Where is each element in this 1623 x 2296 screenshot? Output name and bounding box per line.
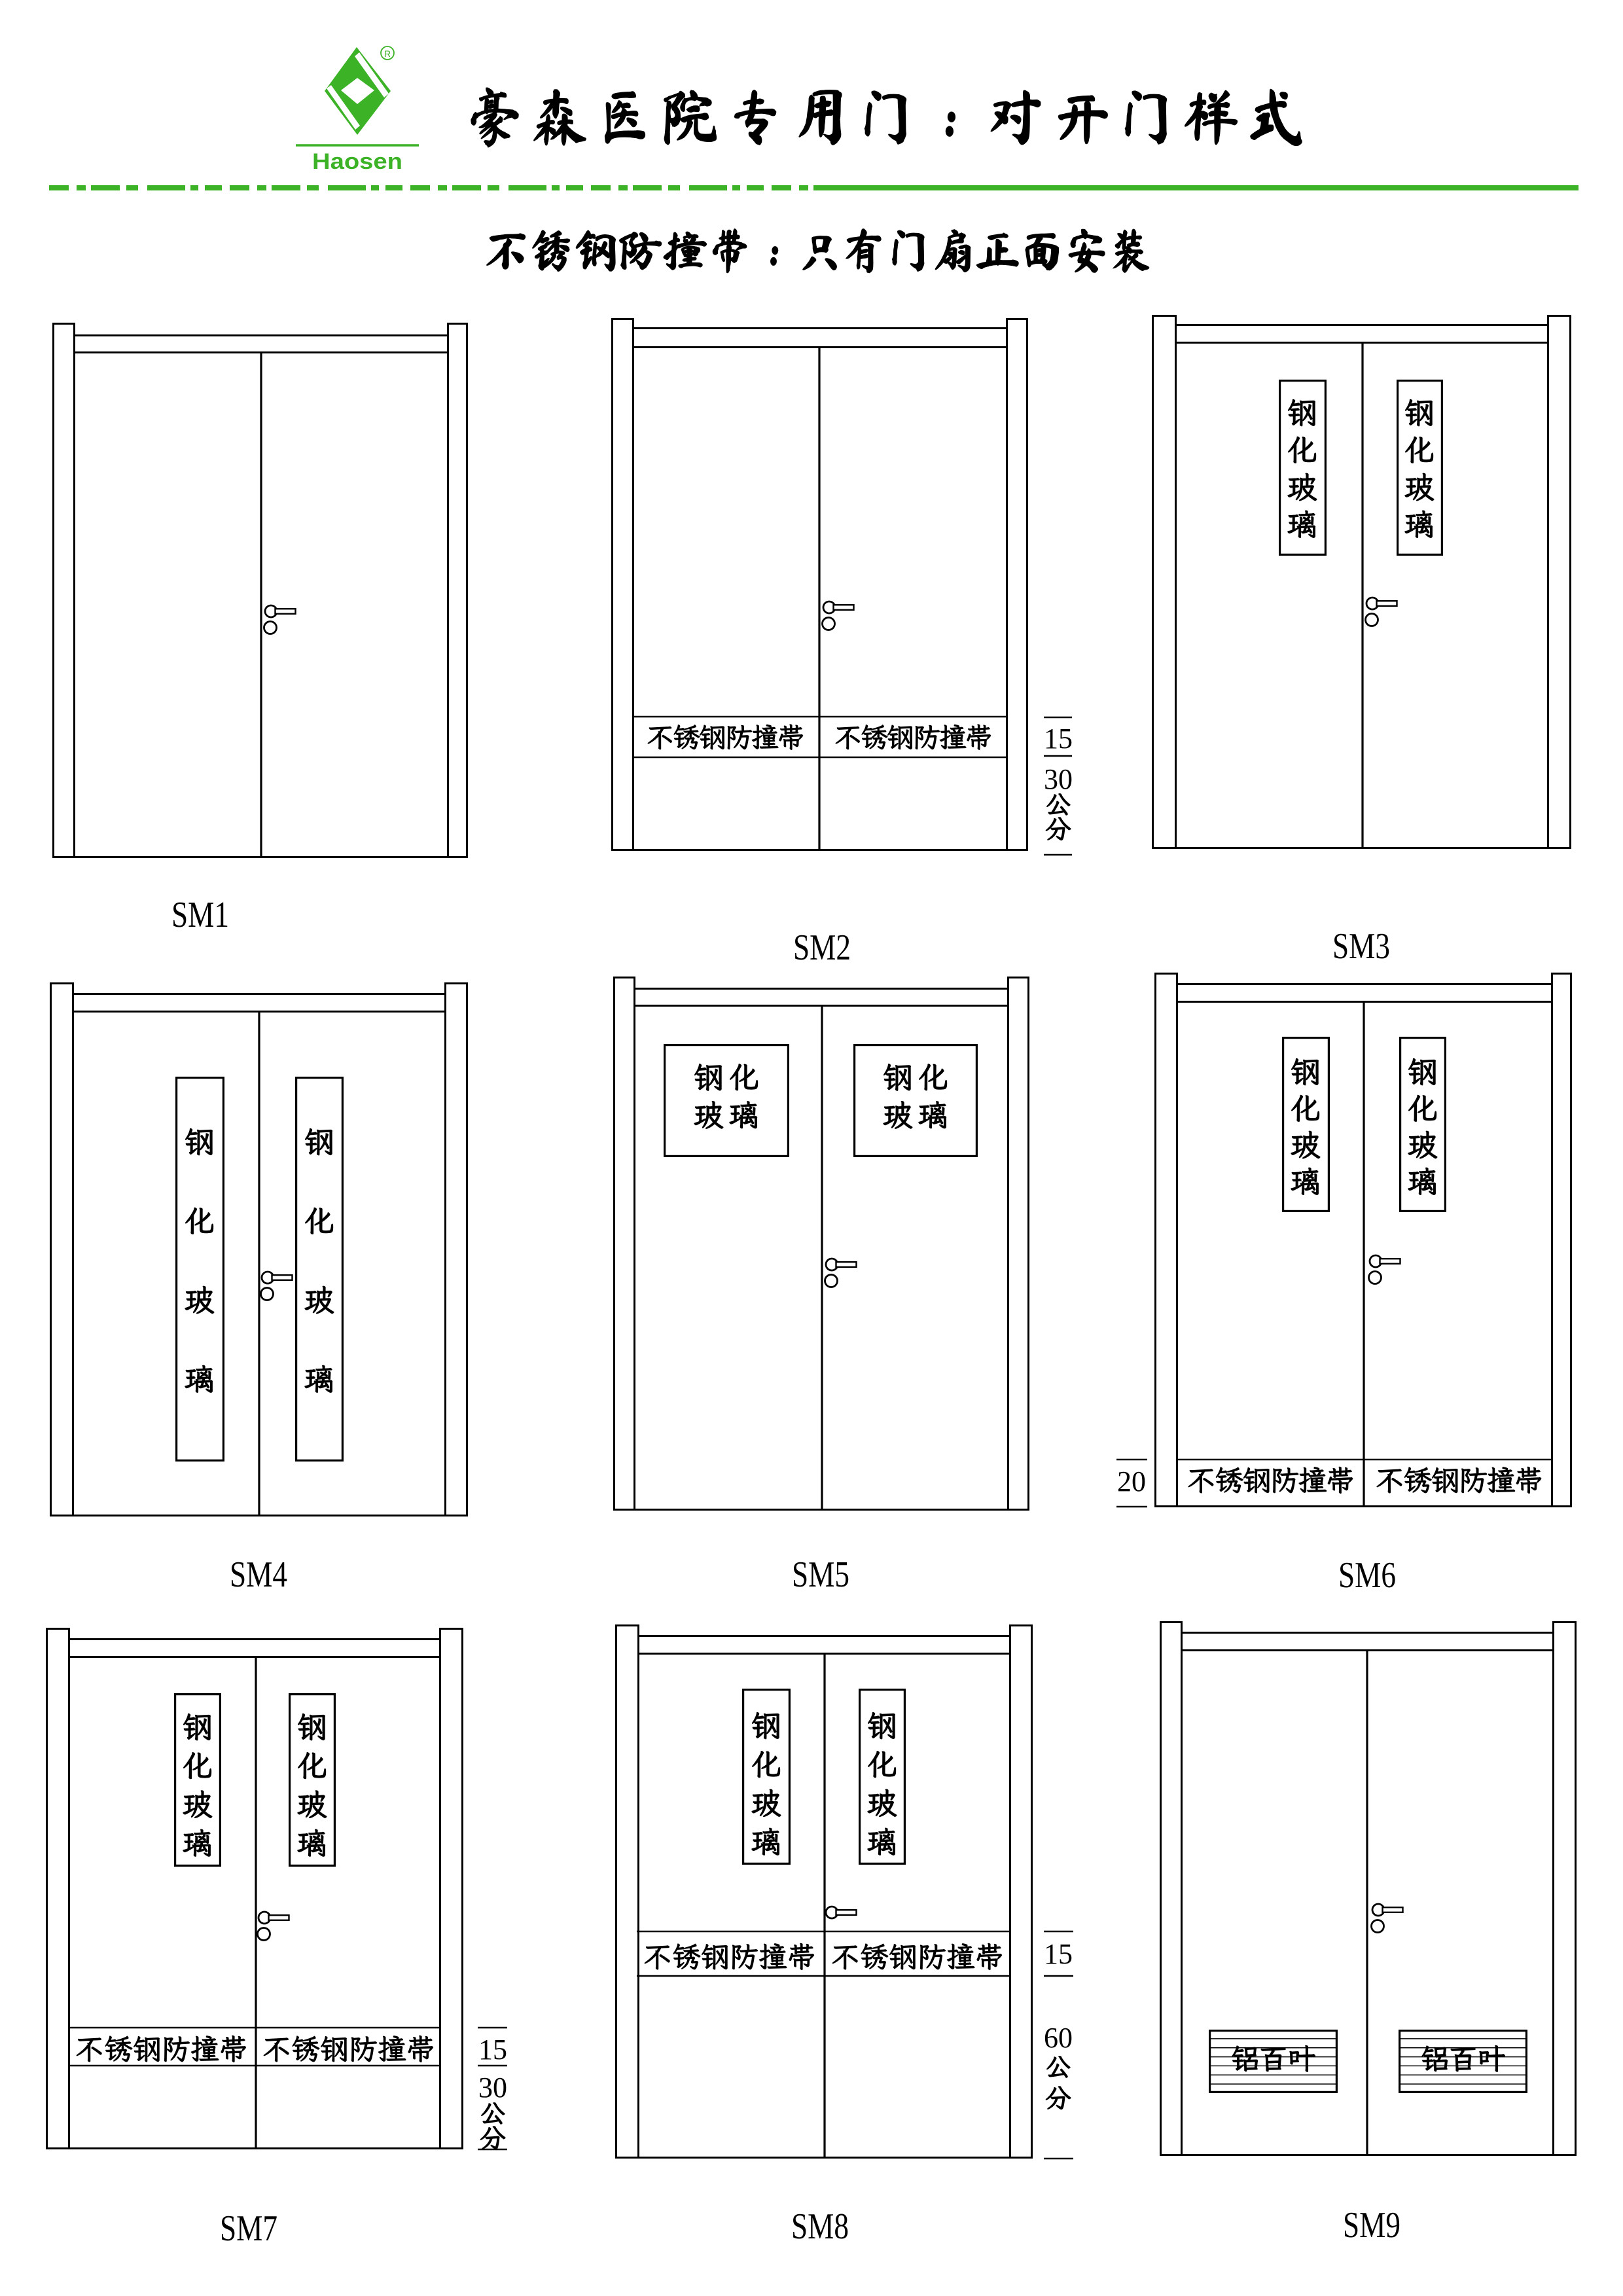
svg-text:SM2: SM2: [793, 927, 851, 968]
svg-text:20: 20: [1117, 1465, 1146, 1498]
svg-text:SM1: SM1: [171, 895, 229, 935]
svg-text:SM7: SM7: [220, 2208, 277, 2249]
svg-text:60: 60: [1044, 2022, 1073, 2054]
svg-text:SM6: SM6: [1338, 1555, 1396, 1596]
svg-text:SM4: SM4: [230, 1554, 287, 1595]
svg-text:15: 15: [1044, 1938, 1073, 1970]
svg-text:R: R: [384, 48, 391, 59]
svg-text:30: 30: [1044, 763, 1073, 795]
svg-text:Haosen: Haosen: [312, 149, 402, 174]
svg-text:15: 15: [478, 2034, 507, 2066]
svg-text:SM3: SM3: [1332, 926, 1390, 967]
svg-text:30: 30: [478, 2072, 507, 2104]
svg-text:SM9: SM9: [1343, 2205, 1400, 2246]
svg-text:SM8: SM8: [791, 2206, 849, 2247]
svg-text:SM5: SM5: [792, 1554, 849, 1595]
svg-text:15: 15: [1044, 723, 1073, 755]
